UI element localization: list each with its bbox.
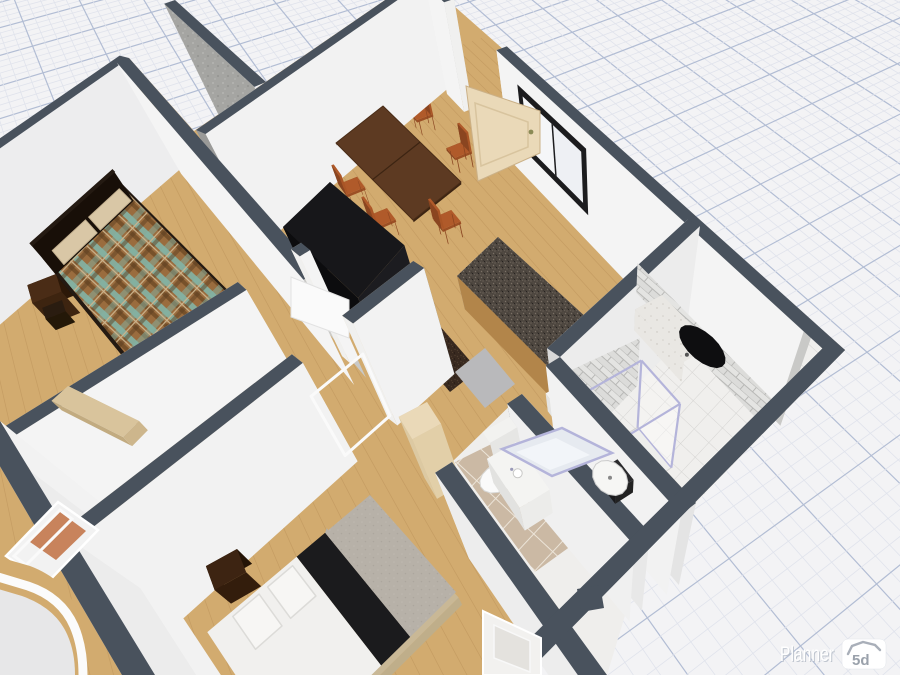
svg-text:5d: 5d [852,652,870,669]
svg-text:Planner: Planner [780,643,834,666]
